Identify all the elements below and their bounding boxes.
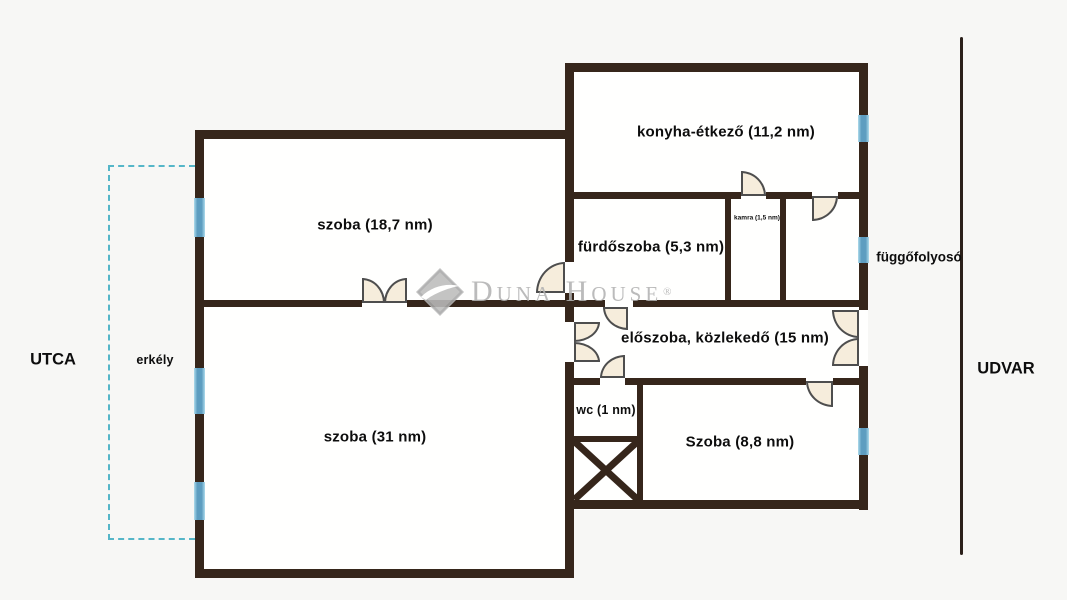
balcony-label: erkély bbox=[136, 353, 173, 367]
wall-segment bbox=[565, 378, 600, 385]
dunahouse-diamond-icon bbox=[414, 266, 466, 318]
room-label-konyha-etkezo: konyha-étkező (11,2 nm) bbox=[637, 124, 815, 141]
wall-segment bbox=[565, 63, 868, 72]
watermark-brand-text: Duna House bbox=[471, 277, 662, 307]
window bbox=[858, 428, 869, 455]
wall-segment bbox=[766, 192, 812, 199]
wall-segment bbox=[833, 378, 859, 385]
room-label-szoba-18-7: szoba (18,7 nm) bbox=[317, 217, 433, 234]
watermark: Duna House® bbox=[414, 266, 672, 318]
shaft-cross-box bbox=[574, 442, 637, 500]
floor-plan: szoba (18,7 nm) szoba (31 nm) konyha-étk… bbox=[0, 0, 1067, 600]
window bbox=[858, 115, 869, 142]
wall-segment bbox=[574, 192, 741, 199]
room-label-szoba-31: szoba (31 nm) bbox=[324, 429, 427, 446]
wall-segment bbox=[780, 199, 786, 303]
window bbox=[858, 237, 869, 263]
gallery-label: függőfolyosó bbox=[876, 250, 961, 265]
wall-segment bbox=[565, 63, 574, 262]
window bbox=[194, 482, 205, 520]
wall-segment bbox=[838, 192, 859, 199]
room-label-szoba-8-8: Szoba (8,8 nm) bbox=[686, 434, 795, 451]
window bbox=[194, 198, 205, 237]
wall-segment bbox=[565, 500, 868, 509]
window bbox=[194, 368, 205, 414]
registered-mark: ® bbox=[663, 286, 671, 298]
wall-segment bbox=[859, 63, 868, 310]
room-label-kamra: kamra (1,5 nm) bbox=[734, 215, 780, 222]
street-label: UTCA bbox=[30, 351, 76, 370]
wall-segment bbox=[204, 300, 362, 307]
wall-segment bbox=[195, 130, 574, 139]
wall-segment bbox=[625, 378, 806, 385]
room-label-wc: wc (1 nm) bbox=[576, 403, 635, 417]
wall-segment bbox=[725, 199, 731, 303]
room-label-furdoszoba: fürdőszoba (5,3 nm) bbox=[578, 239, 724, 256]
wall-segment bbox=[565, 362, 574, 578]
courtyard-label: UDVAR bbox=[977, 360, 1034, 379]
left-block-floor bbox=[195, 130, 574, 578]
courtyard-boundary-line bbox=[960, 37, 963, 555]
room-label-eloszoba: előszoba, közlekedő (15 nm) bbox=[621, 330, 829, 347]
wall-segment bbox=[195, 569, 574, 578]
